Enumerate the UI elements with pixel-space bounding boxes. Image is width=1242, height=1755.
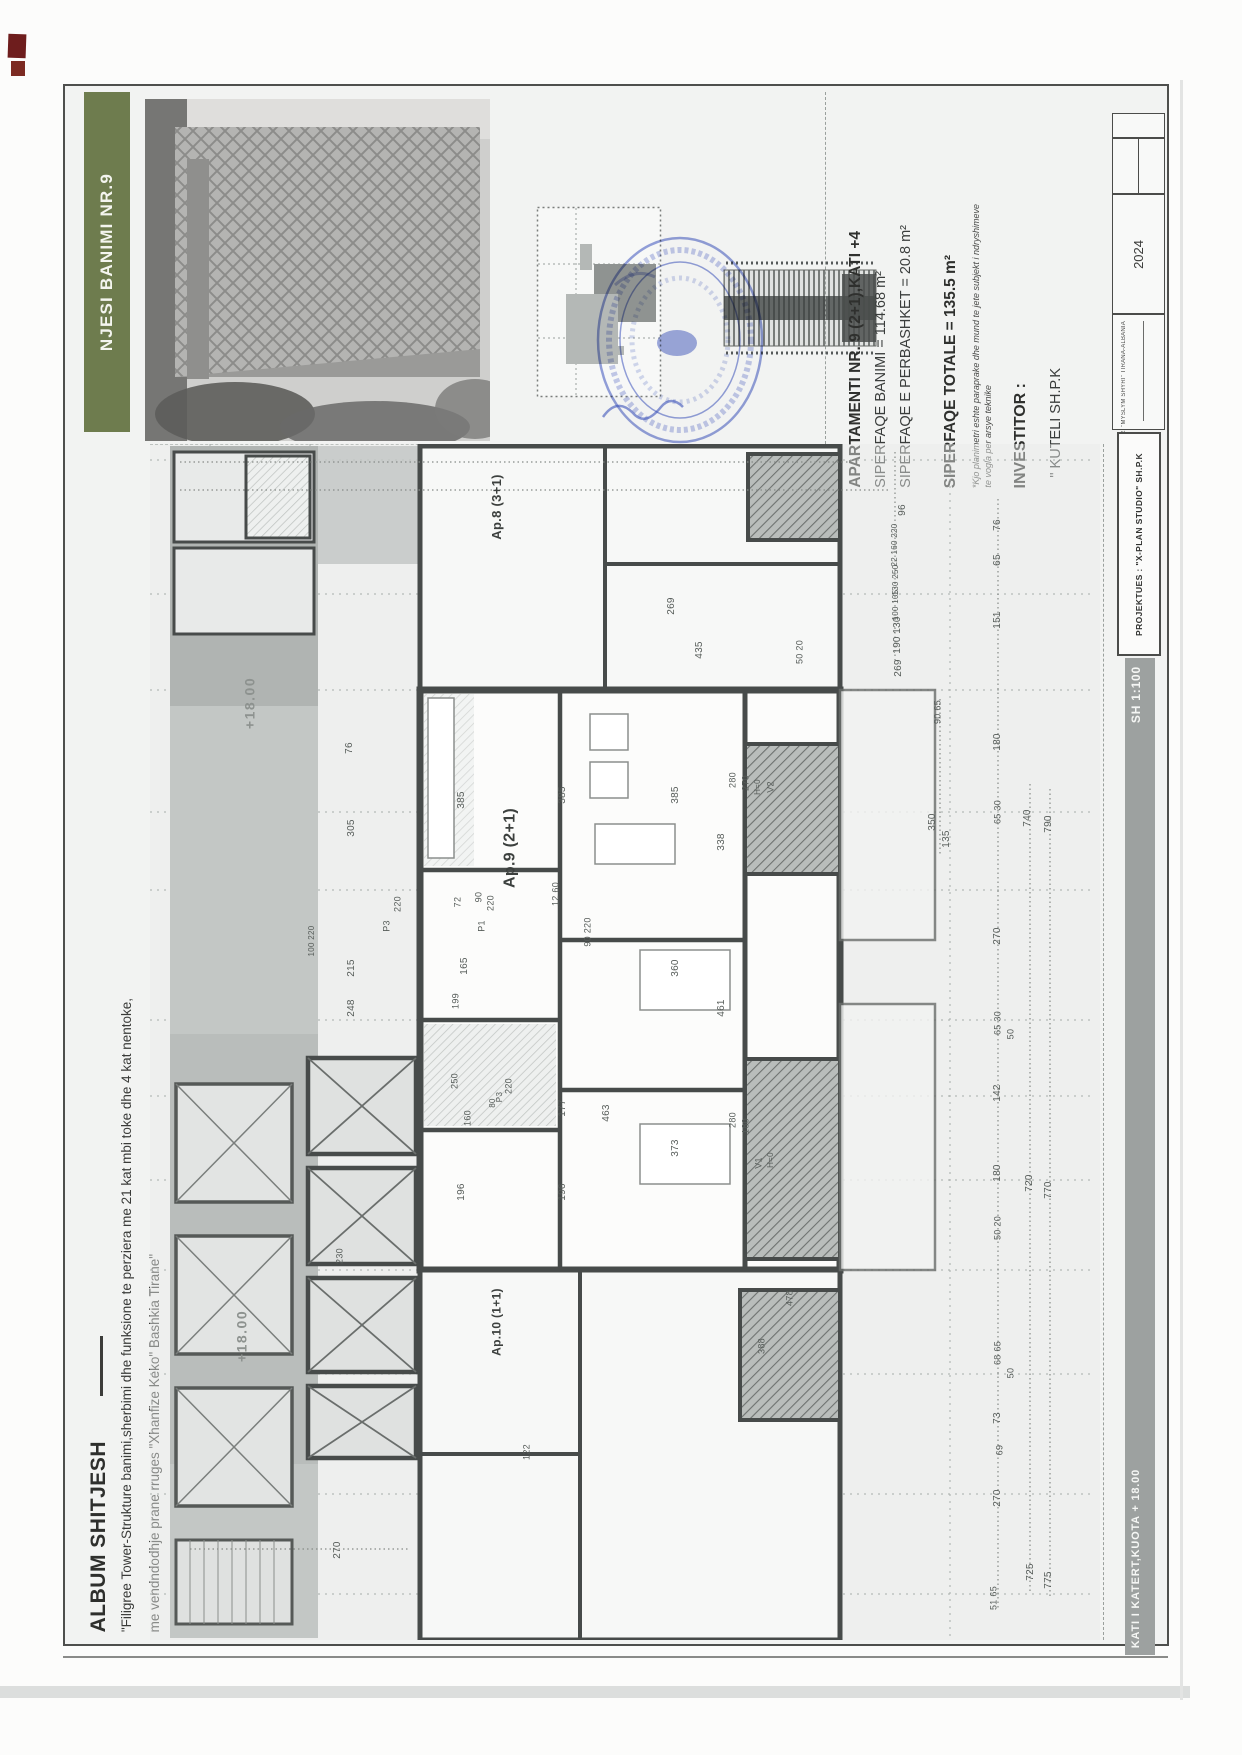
- dimension-label: 740: [1023, 809, 1034, 827]
- separator-plan-right: [1103, 444, 1104, 1640]
- apartment-8-walls: [420, 446, 840, 690]
- projektues-box: PROJEKTUES : "X-PLAN STUDIO" SH.P.K: [1117, 432, 1161, 656]
- sheet-frame-bottom-line: [63, 1656, 1168, 1658]
- dimension-label: 270: [741, 775, 750, 791]
- dimension-label: 96: [898, 504, 909, 516]
- dimension-label: 180: [741, 1118, 750, 1134]
- separator-info-column: [825, 92, 826, 444]
- dimension-label: 248: [347, 999, 358, 1017]
- dimension-label: 76: [345, 742, 356, 754]
- dimension-label: 65 30: [993, 800, 1002, 824]
- album-description-line1: "Filigree Tower-Strukture banimi,sherbim…: [120, 998, 134, 1632]
- apartment-label: Ap.10 (1+1): [491, 1288, 504, 1356]
- paper-right-edge: [1180, 80, 1183, 1700]
- dimension-label: P3: [382, 920, 391, 932]
- dimension-label: 65 30: [993, 1011, 1002, 1035]
- dimension-label: 51 65: [989, 1586, 998, 1610]
- dimension-label: 199: [451, 993, 460, 1009]
- dimension-label: 305: [347, 819, 358, 837]
- dimension-label: 65: [993, 554, 1004, 566]
- dimension-label: 215: [347, 959, 358, 977]
- tower-lattice-facade: [175, 127, 480, 377]
- scan-mark-red-1: [8, 34, 27, 59]
- dimension-label: 50: [1006, 1029, 1015, 1040]
- dimension-label: 461: [717, 999, 728, 1017]
- dimension-label: 196: [558, 1183, 569, 1201]
- elevator-shafts: [308, 1058, 416, 1458]
- address-box-line: [1143, 321, 1144, 421]
- dimension-label: 142: [993, 1084, 1004, 1102]
- dimension-label: 50 20: [795, 640, 804, 664]
- dimension-label: 76: [993, 519, 1004, 531]
- dimension-label: 69: [995, 1445, 1004, 1456]
- dimension-label: 478: [785, 1290, 794, 1306]
- apartment-9-walls: [420, 690, 840, 1270]
- dimension-label: 100 220: [308, 925, 316, 956]
- stamp-center-blob: [657, 330, 697, 356]
- dimension-label: 270: [333, 1541, 344, 1559]
- dimension-label: 151: [993, 611, 1004, 629]
- header-band-label: NJESI BANIMI NR.9: [97, 173, 117, 351]
- dimension-label: 385: [671, 786, 682, 804]
- dimension-label: 385: [558, 786, 569, 804]
- apartment-label: Ap.8 (3+1): [490, 474, 504, 540]
- dimension-label: 280: [728, 1112, 737, 1128]
- dimension-label: H=0: [754, 779, 762, 795]
- dimension-label: 180: [993, 733, 1004, 751]
- bathroom-tiles: [424, 1024, 556, 1126]
- dimension-label: 770: [1044, 1181, 1055, 1199]
- dimension-label: 90: [474, 892, 483, 903]
- header-band: NJESI BANIMI NR.9: [84, 92, 130, 432]
- titleblock-box-split: [1112, 138, 1165, 194]
- dimension-label: 72: [453, 897, 462, 908]
- dimension-label: 90 65: [933, 700, 942, 724]
- dimension-label: 220: [393, 896, 402, 912]
- year-label: 2024: [1131, 240, 1146, 269]
- dimension-label: 180: [993, 1164, 1004, 1182]
- dimension-label: 220: [486, 895, 495, 911]
- dimension-label: 270: [993, 927, 1004, 945]
- dimension-label: 385: [457, 791, 468, 809]
- dimension-label: 50 20: [993, 1216, 1002, 1240]
- album-title-underline: [100, 1336, 103, 1396]
- dimension-label: 220: [504, 1078, 513, 1094]
- floor-bar-label: KATI I KATERT,KUOTA + 18.00: [1131, 1469, 1143, 1648]
- scanned-sheet: NJESI BANIMI NR.9: [0, 0, 1242, 1755]
- dimension-label: 269: [894, 659, 905, 677]
- dimension-label: V2: [766, 781, 775, 793]
- dimension-label: 338: [717, 833, 728, 851]
- level-label: +18.00: [243, 677, 258, 729]
- dimension-label: 160: [463, 1110, 472, 1126]
- dimension-label: 250: [450, 1073, 459, 1089]
- dimension-label: 177: [558, 1099, 569, 1117]
- dimension-label: 373: [671, 1139, 682, 1157]
- scan-mark-red-2: [11, 61, 25, 76]
- dimension-label: 196: [457, 1183, 468, 1201]
- dimension-label: 230: [335, 1248, 344, 1264]
- dimension-label: 463: [602, 1104, 613, 1122]
- dimension-label: 435: [695, 641, 706, 659]
- titleblock-split-divider: [1138, 139, 1139, 193]
- dimension-label: 720: [1025, 1174, 1036, 1192]
- dimension-label: 135: [942, 830, 953, 848]
- dimension-label: 165: [460, 957, 471, 975]
- dimension-label: 122: [522, 1444, 531, 1460]
- dimension-label: 270: [993, 1489, 1004, 1507]
- dimension-label: P1: [477, 920, 486, 932]
- apartment-10-walls: [420, 1270, 840, 1640]
- dimension-label: 73: [993, 1412, 1004, 1424]
- dimension-label: P3: [496, 1092, 504, 1102]
- dimension-label: 360: [671, 959, 682, 977]
- titleblock-box-top: [1112, 113, 1165, 138]
- dimension-label: 12 60: [551, 882, 560, 906]
- dimension-label: 68 65: [993, 1341, 1002, 1365]
- dimension-label: 388: [757, 1338, 766, 1354]
- dimension-label: 269: [667, 597, 678, 615]
- building-photo: [145, 99, 490, 441]
- dimension-label: 190: [893, 636, 904, 654]
- dimension-label: 130: [893, 616, 904, 634]
- dimension-label: 790: [1044, 815, 1055, 833]
- titleblock-year-box: 2024: [1112, 194, 1165, 314]
- dimension-label: 280: [728, 772, 737, 788]
- dimension-label: 725: [1026, 1563, 1037, 1581]
- floor-plan: [150, 444, 1100, 1640]
- dimension-label: H=0: [767, 1152, 775, 1168]
- balcony-v2: [745, 744, 840, 874]
- apartment-label: Ap.9 (2+1): [503, 808, 520, 888]
- dimension-label: V1: [754, 1157, 763, 1169]
- projektues-label: PROJEKTUES : "X-PLAN STUDIO" SH.P.K: [1134, 453, 1144, 636]
- scan-bottom-shadow: [0, 1686, 1190, 1698]
- dimension-label: 22 160 220: [891, 523, 899, 566]
- stairs: [176, 1540, 292, 1624]
- scale-label: SH 1:100: [1130, 666, 1143, 723]
- album-title: ALBUM SHITJESH: [88, 1441, 110, 1632]
- level-label: +18.00: [235, 1310, 250, 1362]
- dimension-label: 90 220: [583, 917, 592, 946]
- approval-stamp: [585, 225, 775, 455]
- dimension-label: 350: [928, 813, 939, 831]
- studio-address-label: RR. "MYSLYM SHYRI" TIRANA-ALBANIA: [1121, 321, 1127, 440]
- titleblock-address-box: RR. "MYSLYM SHYRI" TIRANA-ALBANIA: [1112, 314, 1165, 430]
- core-rooms-top: [174, 452, 314, 634]
- balcony-ap10: [740, 1290, 840, 1420]
- dimension-label: 50: [1006, 1368, 1015, 1379]
- dimension-label: 775: [1044, 1571, 1055, 1589]
